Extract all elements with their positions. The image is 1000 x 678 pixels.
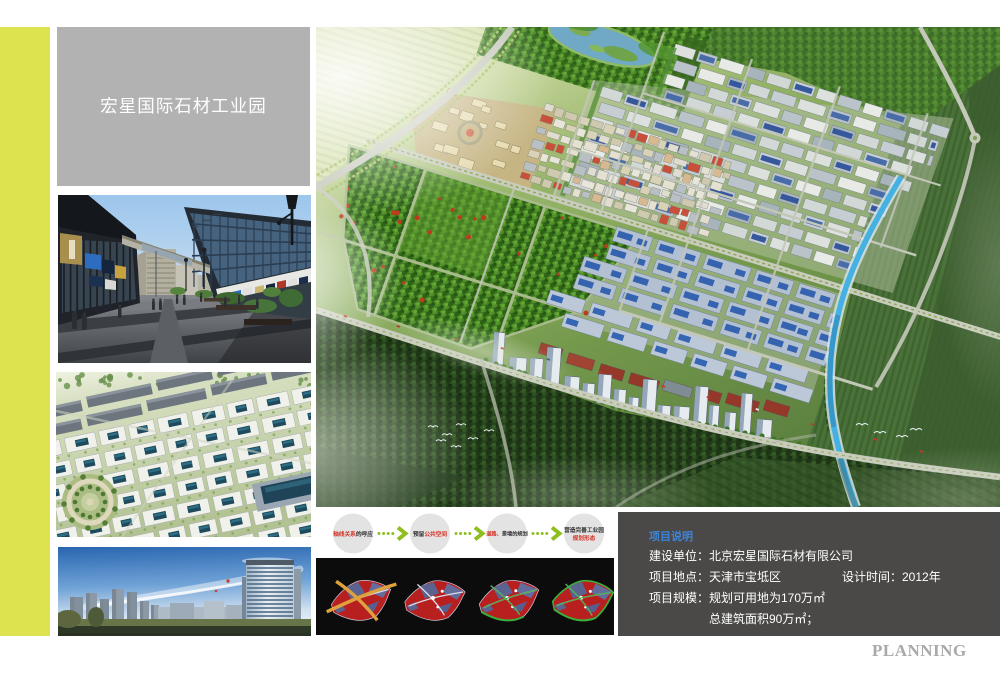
svg-text:营造完善工业园: 营造完善工业园	[564, 526, 604, 534]
svg-text:道路、景墙的规划: 道路、景墙的规划	[486, 530, 528, 538]
svg-text:轴线关系的呼应: 轴线关系的呼应	[333, 530, 373, 538]
svg-text:预留公共空间: 预留公共空间	[413, 530, 447, 538]
svg-text:规划形态: 规划形态	[573, 534, 596, 542]
